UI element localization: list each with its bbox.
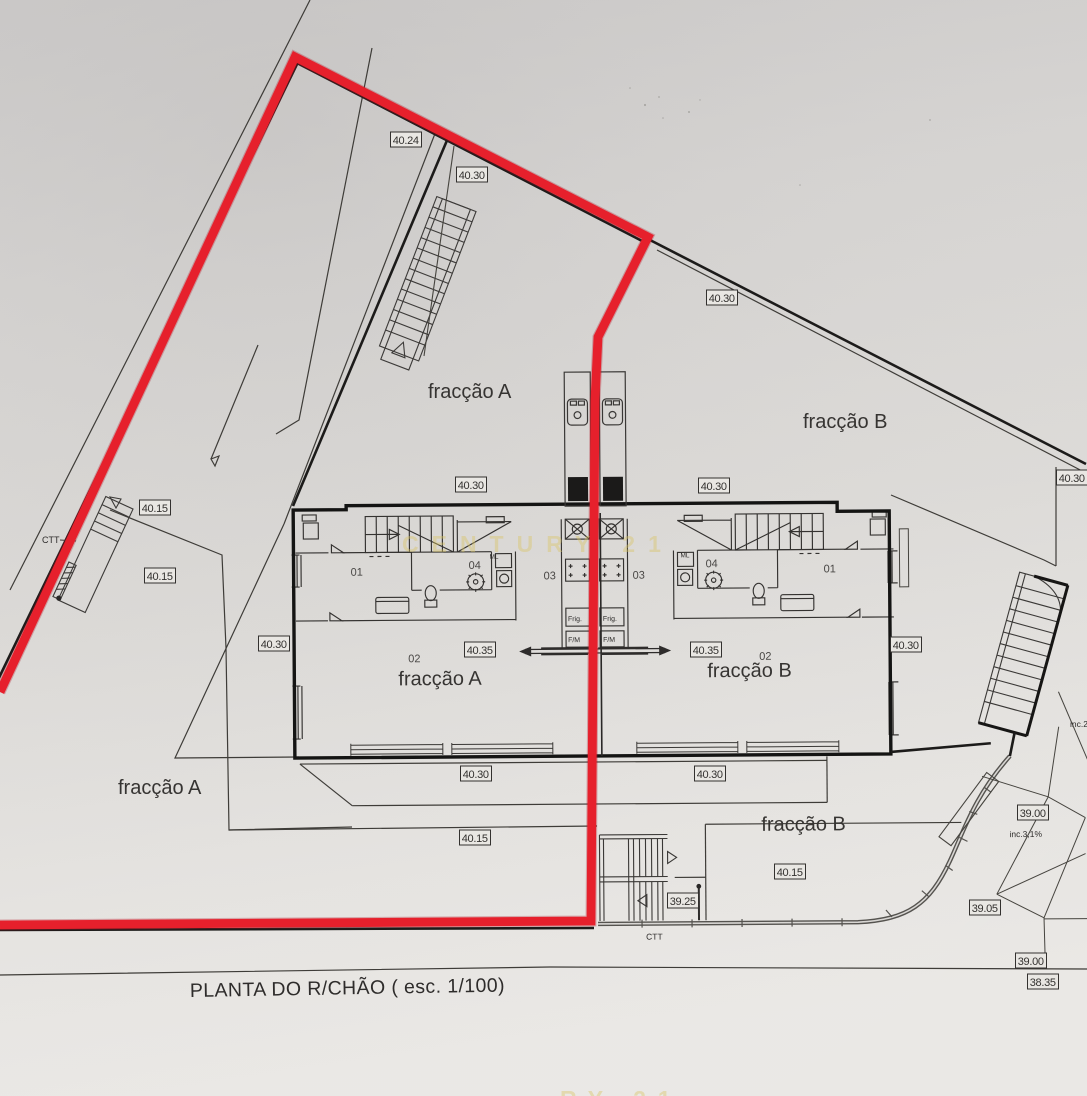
svg-text:39.00: 39.00 — [1018, 956, 1044, 968]
svg-text:fracção B: fracção B — [707, 660, 792, 683]
svg-text:40.30: 40.30 — [1059, 473, 1085, 485]
svg-text:CENTURY 21: CENTURY 21 — [402, 531, 674, 557]
svg-text:Frig.: Frig. — [568, 616, 582, 623]
svg-text:40.15: 40.15 — [462, 833, 488, 845]
svg-text:CTT: CTT — [646, 932, 663, 942]
svg-text:40.24: 40.24 — [393, 135, 419, 147]
svg-text:40.15: 40.15 — [777, 867, 803, 879]
svg-text:01: 01 — [351, 567, 363, 579]
svg-text:40.30: 40.30 — [893, 640, 919, 652]
svg-text:40.35: 40.35 — [693, 645, 719, 657]
svg-text:40.30: 40.30 — [463, 769, 489, 781]
svg-text:01: 01 — [824, 563, 836, 575]
svg-text:fracção A: fracção A — [428, 381, 512, 403]
svg-text:03: 03 — [633, 570, 645, 582]
svg-text:38.35: 38.35 — [1030, 977, 1056, 989]
svg-text:F/M: F/M — [568, 637, 580, 644]
svg-text:02: 02 — [408, 653, 420, 665]
svg-text:03: 03 — [544, 570, 556, 582]
svg-text:RY 21: RY 21 — [560, 1086, 683, 1096]
svg-text:fracção A: fracção A — [118, 777, 202, 799]
svg-text:40.15: 40.15 — [142, 503, 168, 515]
svg-text:40.35: 40.35 — [467, 645, 493, 657]
svg-text:fracção B: fracção B — [761, 813, 846, 836]
svg-text:fracção B: fracção B — [803, 411, 887, 433]
svg-text:39.05: 39.05 — [972, 903, 998, 915]
svg-text:40.30: 40.30 — [458, 480, 484, 492]
svg-text:fracção A: fracção A — [398, 668, 482, 691]
svg-text:39.00: 39.00 — [1020, 808, 1046, 820]
svg-text:39.25: 39.25 — [670, 896, 696, 908]
svg-text:40.30: 40.30 — [701, 481, 727, 493]
svg-text:04: 04 — [706, 558, 718, 570]
svg-text:CTT: CTT — [42, 535, 60, 545]
svg-text:40.30: 40.30 — [709, 293, 735, 305]
svg-text:40.30: 40.30 — [459, 170, 485, 182]
svg-text:04: 04 — [469, 560, 481, 572]
svg-text:inc.3,1%: inc.3,1% — [1009, 829, 1042, 839]
svg-text:40.15: 40.15 — [147, 571, 173, 583]
svg-text:F/M: F/M — [603, 637, 615, 644]
svg-text:ML: ML — [680, 552, 689, 559]
svg-text:40.30: 40.30 — [697, 769, 723, 781]
svg-text:40.30: 40.30 — [261, 639, 287, 651]
svg-text:Frig.: Frig. — [603, 616, 617, 623]
